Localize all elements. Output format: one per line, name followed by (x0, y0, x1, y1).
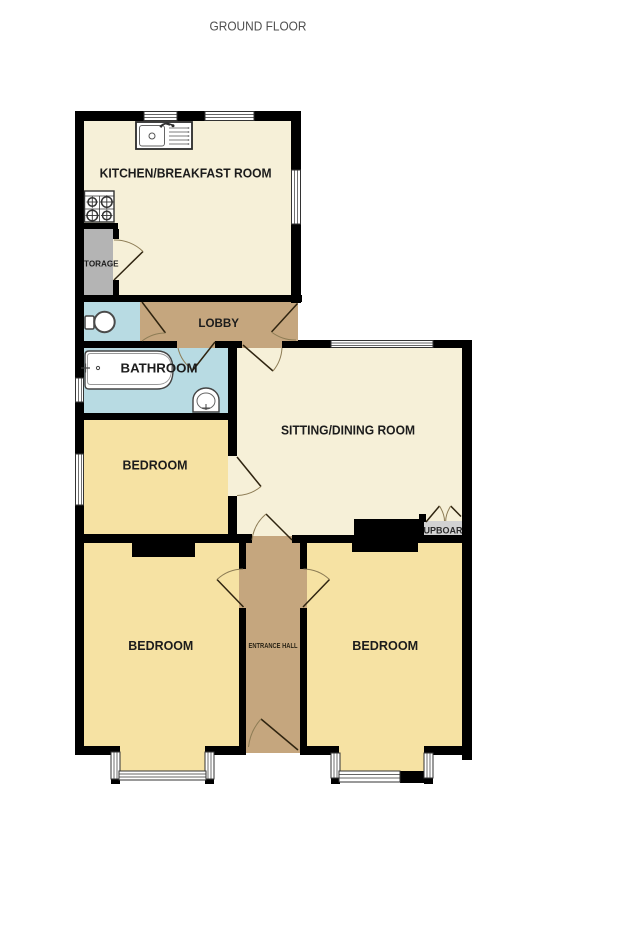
svg-text:LOBBY: LOBBY (198, 316, 239, 330)
svg-text:BEDROOM: BEDROOM (123, 458, 188, 473)
svg-text:STORAGE: STORAGE (79, 260, 120, 269)
svg-text:CUPBOARD: CUPBOARD (417, 526, 469, 537)
svg-text:BEDROOM: BEDROOM (128, 638, 193, 653)
svg-text:BATHROOM: BATHROOM (121, 361, 198, 376)
svg-text:SITTING/DINING ROOM: SITTING/DINING ROOM (281, 423, 415, 438)
svg-text:ENTRANCE HALL: ENTRANCE HALL (249, 641, 298, 650)
svg-text:BEDROOM: BEDROOM (352, 638, 418, 653)
svg-text:GROUND FLOOR: GROUND FLOOR (210, 19, 307, 34)
svg-text:KITCHEN/BREAKFAST ROOM: KITCHEN/BREAKFAST ROOM (100, 165, 272, 180)
